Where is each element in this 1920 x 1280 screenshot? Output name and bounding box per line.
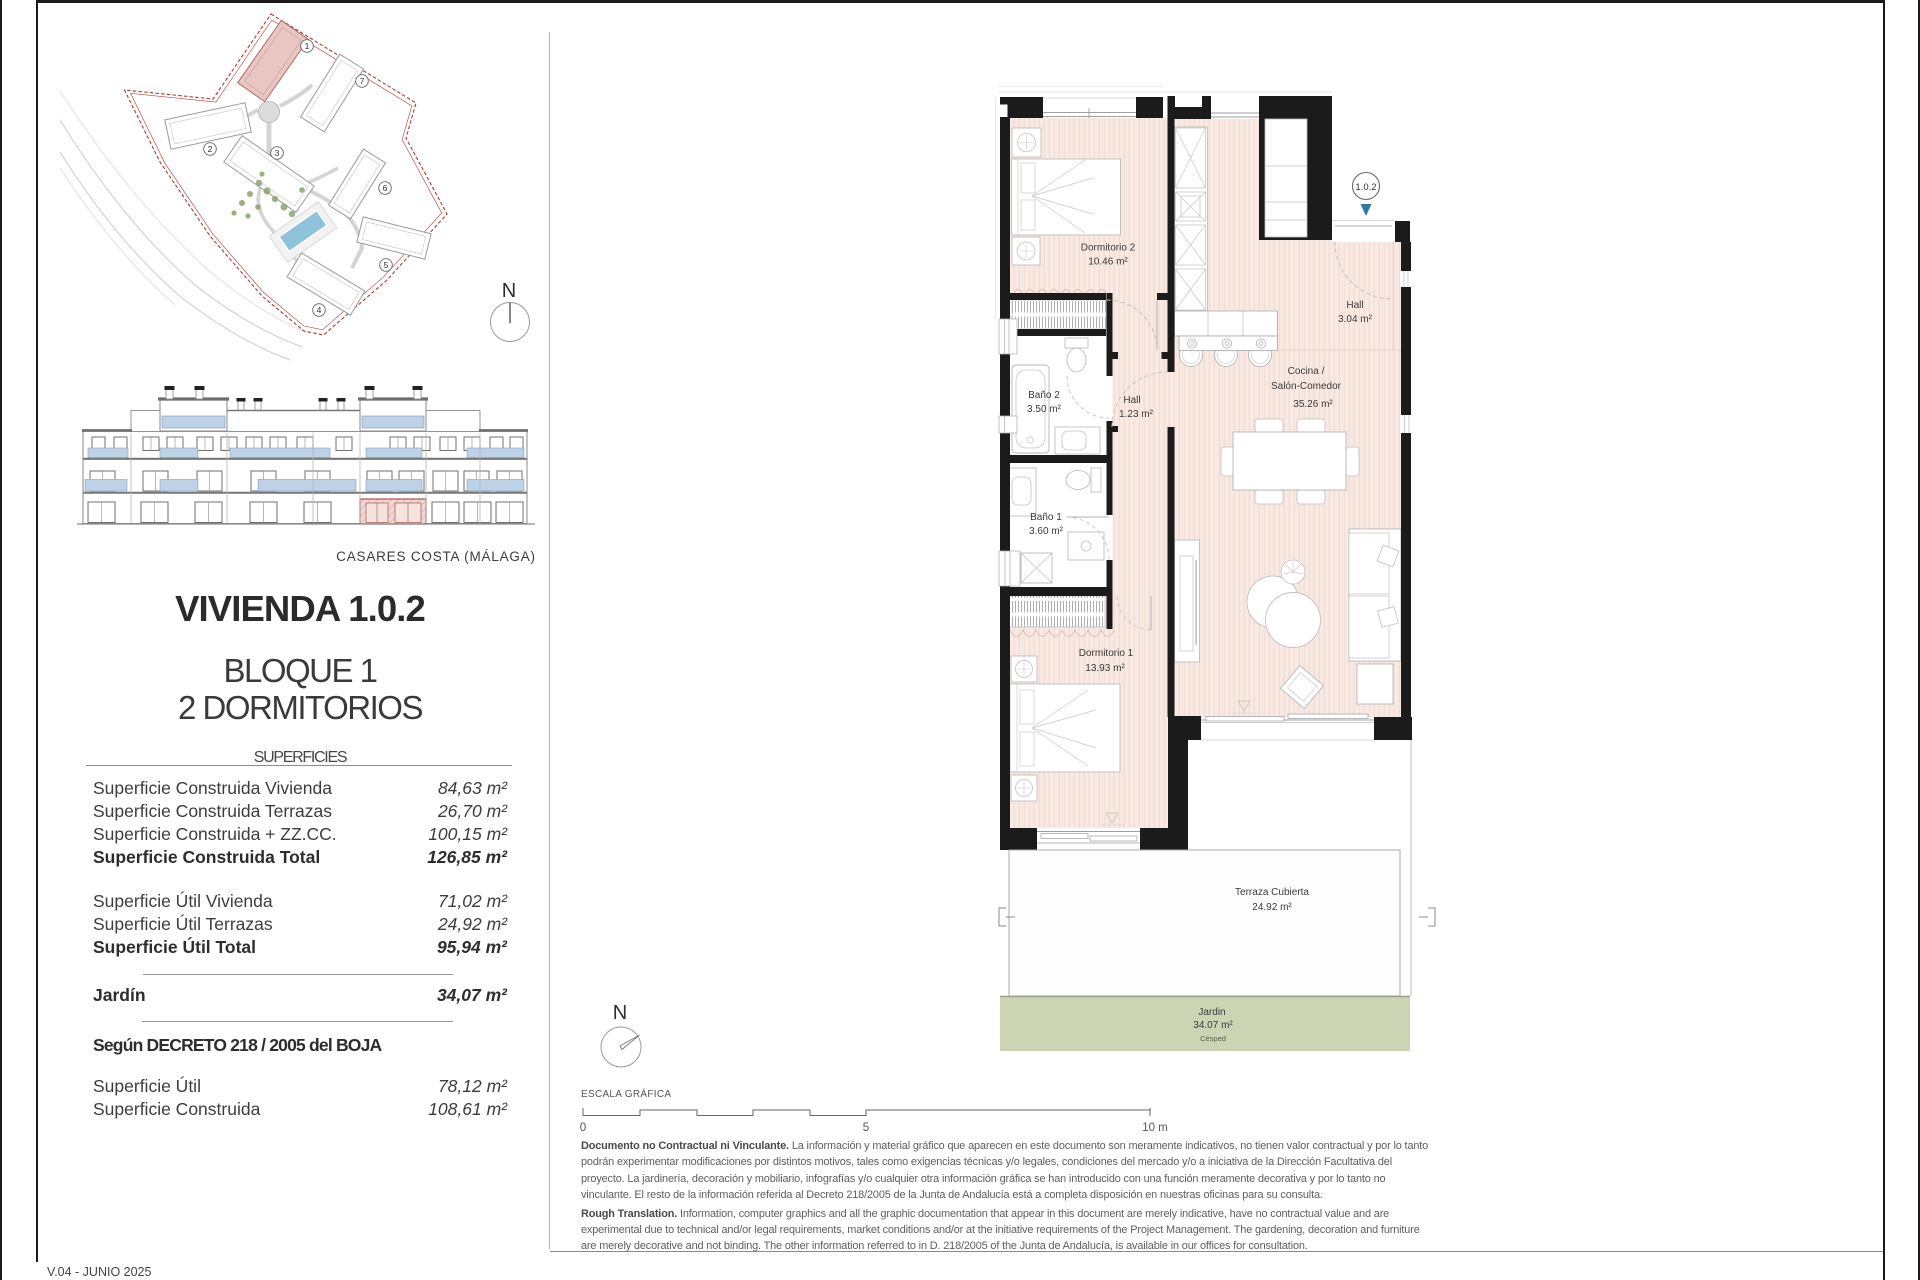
- svg-text:1.23 m²: 1.23 m²: [1119, 409, 1154, 420]
- svg-text:Hall: Hall: [1346, 300, 1363, 311]
- svg-text:10 m: 10 m: [1142, 1122, 1168, 1134]
- svg-text:Dormitorio 2: Dormitorio 2: [1081, 243, 1136, 254]
- svg-text:5: 5: [863, 1122, 869, 1134]
- svg-text:1: 1: [305, 41, 310, 51]
- svg-text:Césped: Césped: [1200, 1034, 1226, 1043]
- svg-text:5: 5: [384, 260, 389, 270]
- svg-text:34.07 m²: 34.07 m²: [1193, 1020, 1233, 1031]
- svg-text:3.04 m²: 3.04 m²: [1338, 314, 1373, 325]
- svg-text:Baño 2: Baño 2: [1028, 390, 1060, 401]
- svg-text:24.92 m²: 24.92 m²: [1252, 902, 1292, 913]
- svg-text:N: N: [502, 280, 516, 302]
- svg-text:Hall: Hall: [1123, 395, 1140, 406]
- svg-text:2: 2: [208, 144, 213, 154]
- svg-text:10.46 m²: 10.46 m²: [1088, 257, 1128, 268]
- svg-text:Salón-Comedor: Salón-Comedor: [1271, 381, 1342, 392]
- svg-text:N: N: [613, 1002, 627, 1024]
- svg-text:4: 4: [317, 305, 322, 315]
- svg-text:Jardin: Jardin: [1198, 1007, 1225, 1018]
- svg-text:6: 6: [383, 183, 388, 193]
- svg-text:35.26 m²: 35.26 m²: [1293, 399, 1333, 410]
- svg-text:Baño 1: Baño 1: [1030, 512, 1062, 523]
- svg-text:0: 0: [580, 1122, 586, 1134]
- svg-text:3.60 m²: 3.60 m²: [1029, 526, 1064, 537]
- svg-text:3: 3: [275, 148, 280, 158]
- svg-text:7: 7: [360, 76, 365, 86]
- svg-text:1.0.2: 1.0.2: [1355, 182, 1376, 193]
- svg-text:Dormitorio 1: Dormitorio 1: [1079, 648, 1134, 659]
- svg-text:Terraza Cubierta: Terraza Cubierta: [1235, 887, 1309, 898]
- svg-text:3.50 m²: 3.50 m²: [1027, 404, 1062, 415]
- svg-text:Cocina /: Cocina /: [1288, 366, 1325, 377]
- svg-text:13.93 m²: 13.93 m²: [1085, 663, 1125, 674]
